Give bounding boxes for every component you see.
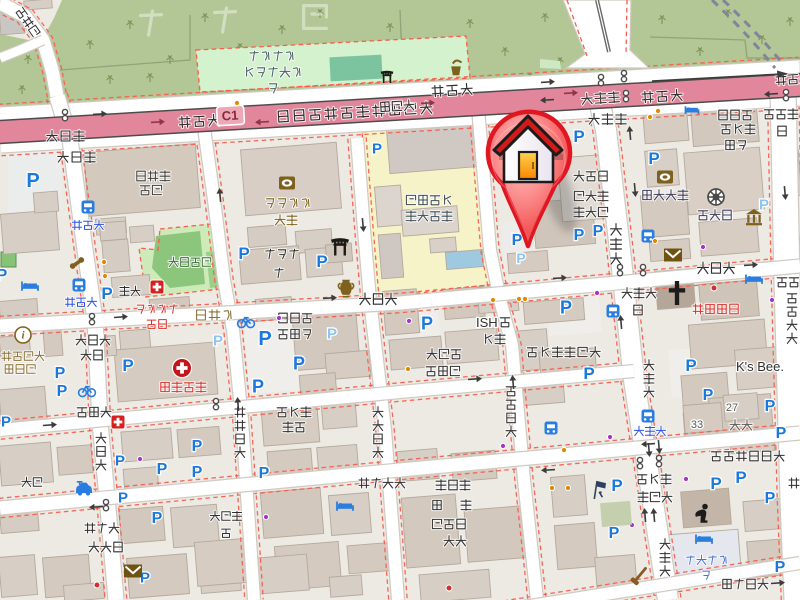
svg-text:P: P bbox=[573, 127, 584, 146]
svg-text:K's Bee.: K's Bee. bbox=[736, 359, 784, 374]
svg-text:P: P bbox=[0, 267, 8, 284]
svg-text:P: P bbox=[609, 525, 620, 542]
svg-text:P: P bbox=[152, 510, 163, 527]
svg-text:P: P bbox=[122, 356, 133, 375]
svg-text:P: P bbox=[735, 468, 746, 487]
svg-text:P: P bbox=[593, 223, 604, 240]
svg-text:P: P bbox=[316, 252, 327, 271]
svg-text:P: P bbox=[26, 170, 39, 192]
svg-text:P: P bbox=[775, 559, 786, 576]
svg-text:P: P bbox=[115, 452, 125, 469]
svg-text:P: P bbox=[765, 490, 776, 507]
svg-text:P: P bbox=[293, 353, 305, 373]
svg-text:P: P bbox=[101, 284, 112, 303]
svg-text:P: P bbox=[55, 365, 66, 382]
svg-text:P: P bbox=[252, 376, 264, 396]
svg-text:P: P bbox=[118, 489, 128, 506]
svg-text:P: P bbox=[648, 149, 659, 168]
svg-text:P: P bbox=[710, 474, 721, 493]
svg-text:P: P bbox=[57, 383, 68, 400]
svg-text:P: P bbox=[259, 465, 270, 482]
svg-text:P: P bbox=[192, 464, 203, 481]
svg-text:P: P bbox=[1, 413, 11, 430]
svg-text:P: P bbox=[560, 297, 572, 317]
svg-text:P: P bbox=[574, 227, 585, 244]
svg-text:P: P bbox=[421, 313, 433, 333]
svg-text:P: P bbox=[157, 461, 168, 478]
svg-text:P: P bbox=[611, 476, 622, 495]
svg-text:P: P bbox=[765, 398, 776, 415]
svg-text:33: 33 bbox=[691, 419, 703, 431]
svg-text:P: P bbox=[238, 244, 249, 263]
svg-text:P: P bbox=[213, 332, 223, 349]
svg-text:P: P bbox=[372, 140, 382, 157]
svg-text:P: P bbox=[759, 196, 769, 213]
svg-text:P: P bbox=[685, 356, 696, 375]
svg-text:ISH: ISH bbox=[476, 315, 498, 330]
svg-text:P: P bbox=[703, 387, 714, 404]
svg-text:P: P bbox=[258, 328, 271, 350]
svg-text:P: P bbox=[327, 325, 337, 342]
svg-text:P: P bbox=[583, 364, 594, 383]
svg-text:P: P bbox=[776, 425, 787, 442]
svg-text:P: P bbox=[512, 232, 523, 249]
svg-text:P: P bbox=[192, 438, 203, 455]
svg-text:27: 27 bbox=[726, 402, 738, 414]
svg-text:C1: C1 bbox=[221, 108, 238, 124]
svg-text:P: P bbox=[516, 250, 525, 266]
